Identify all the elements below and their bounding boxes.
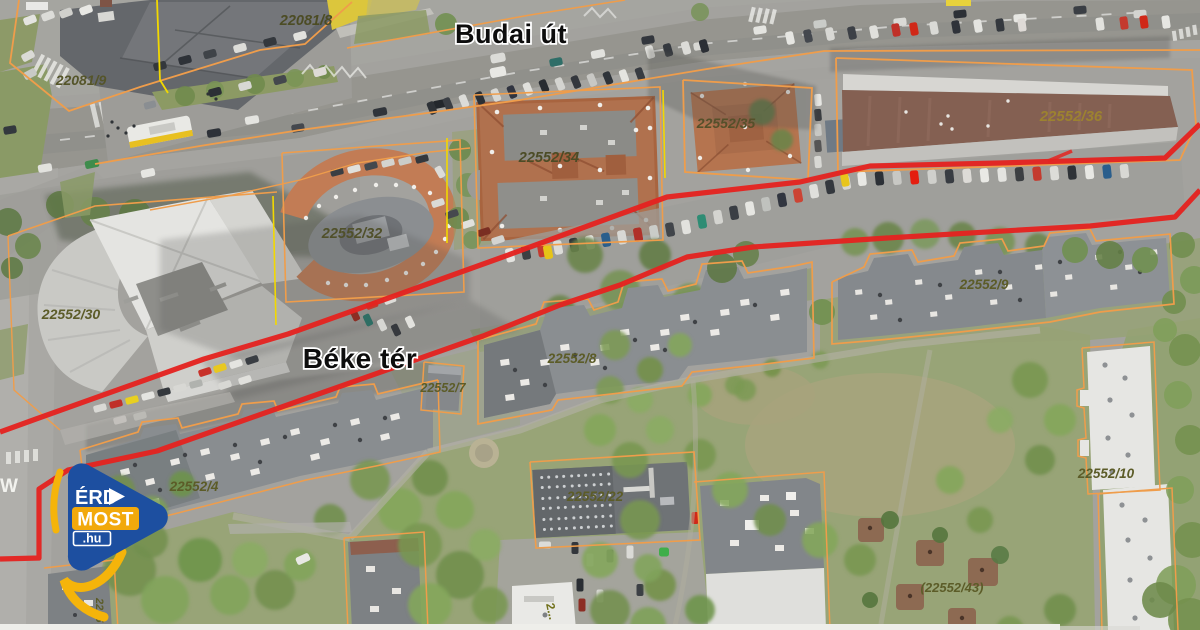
svg-text:Budai út: Budai út <box>455 19 567 49</box>
svg-text:Béke tér: Béke tér <box>303 343 418 374</box>
svg-text:(22552/43): (22552/43) <box>921 580 984 595</box>
svg-text:22552/7: 22552/7 <box>419 381 466 395</box>
svg-text:22552/9: 22552/9 <box>959 277 1009 292</box>
svg-text:22552/30: 22552/30 <box>41 306 101 322</box>
svg-text:22552/4: 22552/4 <box>169 479 219 494</box>
svg-text:22552/10: 22552/10 <box>1077 466 1135 481</box>
svg-text:22081/8: 22081/8 <box>279 13 333 29</box>
svg-text:22552/32: 22552/32 <box>321 226 382 242</box>
svg-text:22081/9: 22081/9 <box>55 72 107 88</box>
svg-text:22552/8: 22552/8 <box>547 351 597 366</box>
svg-text:.hu: .hu <box>83 532 102 546</box>
svg-text:22552/22: 22552/22 <box>566 489 624 504</box>
svg-text:22552/36: 22552/36 <box>1039 108 1103 125</box>
svg-text:W: W <box>0 476 18 497</box>
svg-text:22552/35: 22552/35 <box>696 115 756 131</box>
svg-text:22552/34: 22552/34 <box>518 150 579 166</box>
svg-text:MOST: MOST <box>77 510 134 531</box>
